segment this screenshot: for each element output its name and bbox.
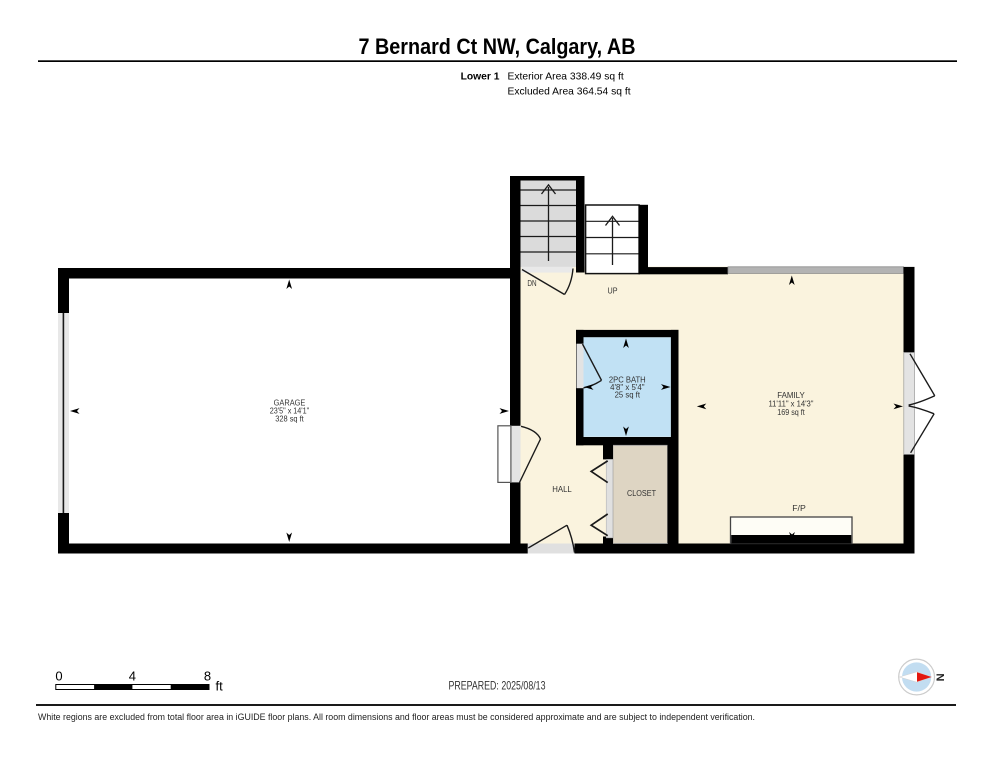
svg-text:F/P: F/P [792, 503, 806, 513]
svg-text:Excluded Area 364.54 sq ft: Excluded Area 364.54 sq ft [508, 87, 631, 98]
svg-text:UP: UP [608, 286, 618, 296]
svg-text:25 sq ft: 25 sq ft [615, 390, 641, 400]
svg-text:Lower 1: Lower 1 [461, 72, 500, 83]
svg-text:4: 4 [129, 669, 136, 684]
svg-text:Exterior Area 338.49 sq ft: Exterior Area 338.49 sq ft [508, 72, 624, 83]
svg-text:7 Bernard Ct NW, Calgary, AB: 7 Bernard Ct NW, Calgary, AB [359, 34, 636, 59]
svg-text:CLOSET: CLOSET [627, 488, 657, 498]
svg-text:328 sq ft: 328 sq ft [275, 414, 304, 424]
svg-text:0: 0 [55, 669, 62, 684]
svg-text:PREPARED: 2025/08/13: PREPARED: 2025/08/13 [449, 678, 546, 692]
svg-text:169 sq ft: 169 sq ft [777, 407, 805, 417]
svg-text:DN: DN [527, 278, 536, 288]
svg-text:ft: ft [216, 679, 224, 694]
svg-text:HALL: HALL [552, 484, 572, 494]
svg-text:N: N [934, 673, 946, 681]
svg-text:White regions are excluded fro: White regions are excluded from total fl… [38, 712, 755, 722]
svg-text:8: 8 [204, 669, 211, 684]
